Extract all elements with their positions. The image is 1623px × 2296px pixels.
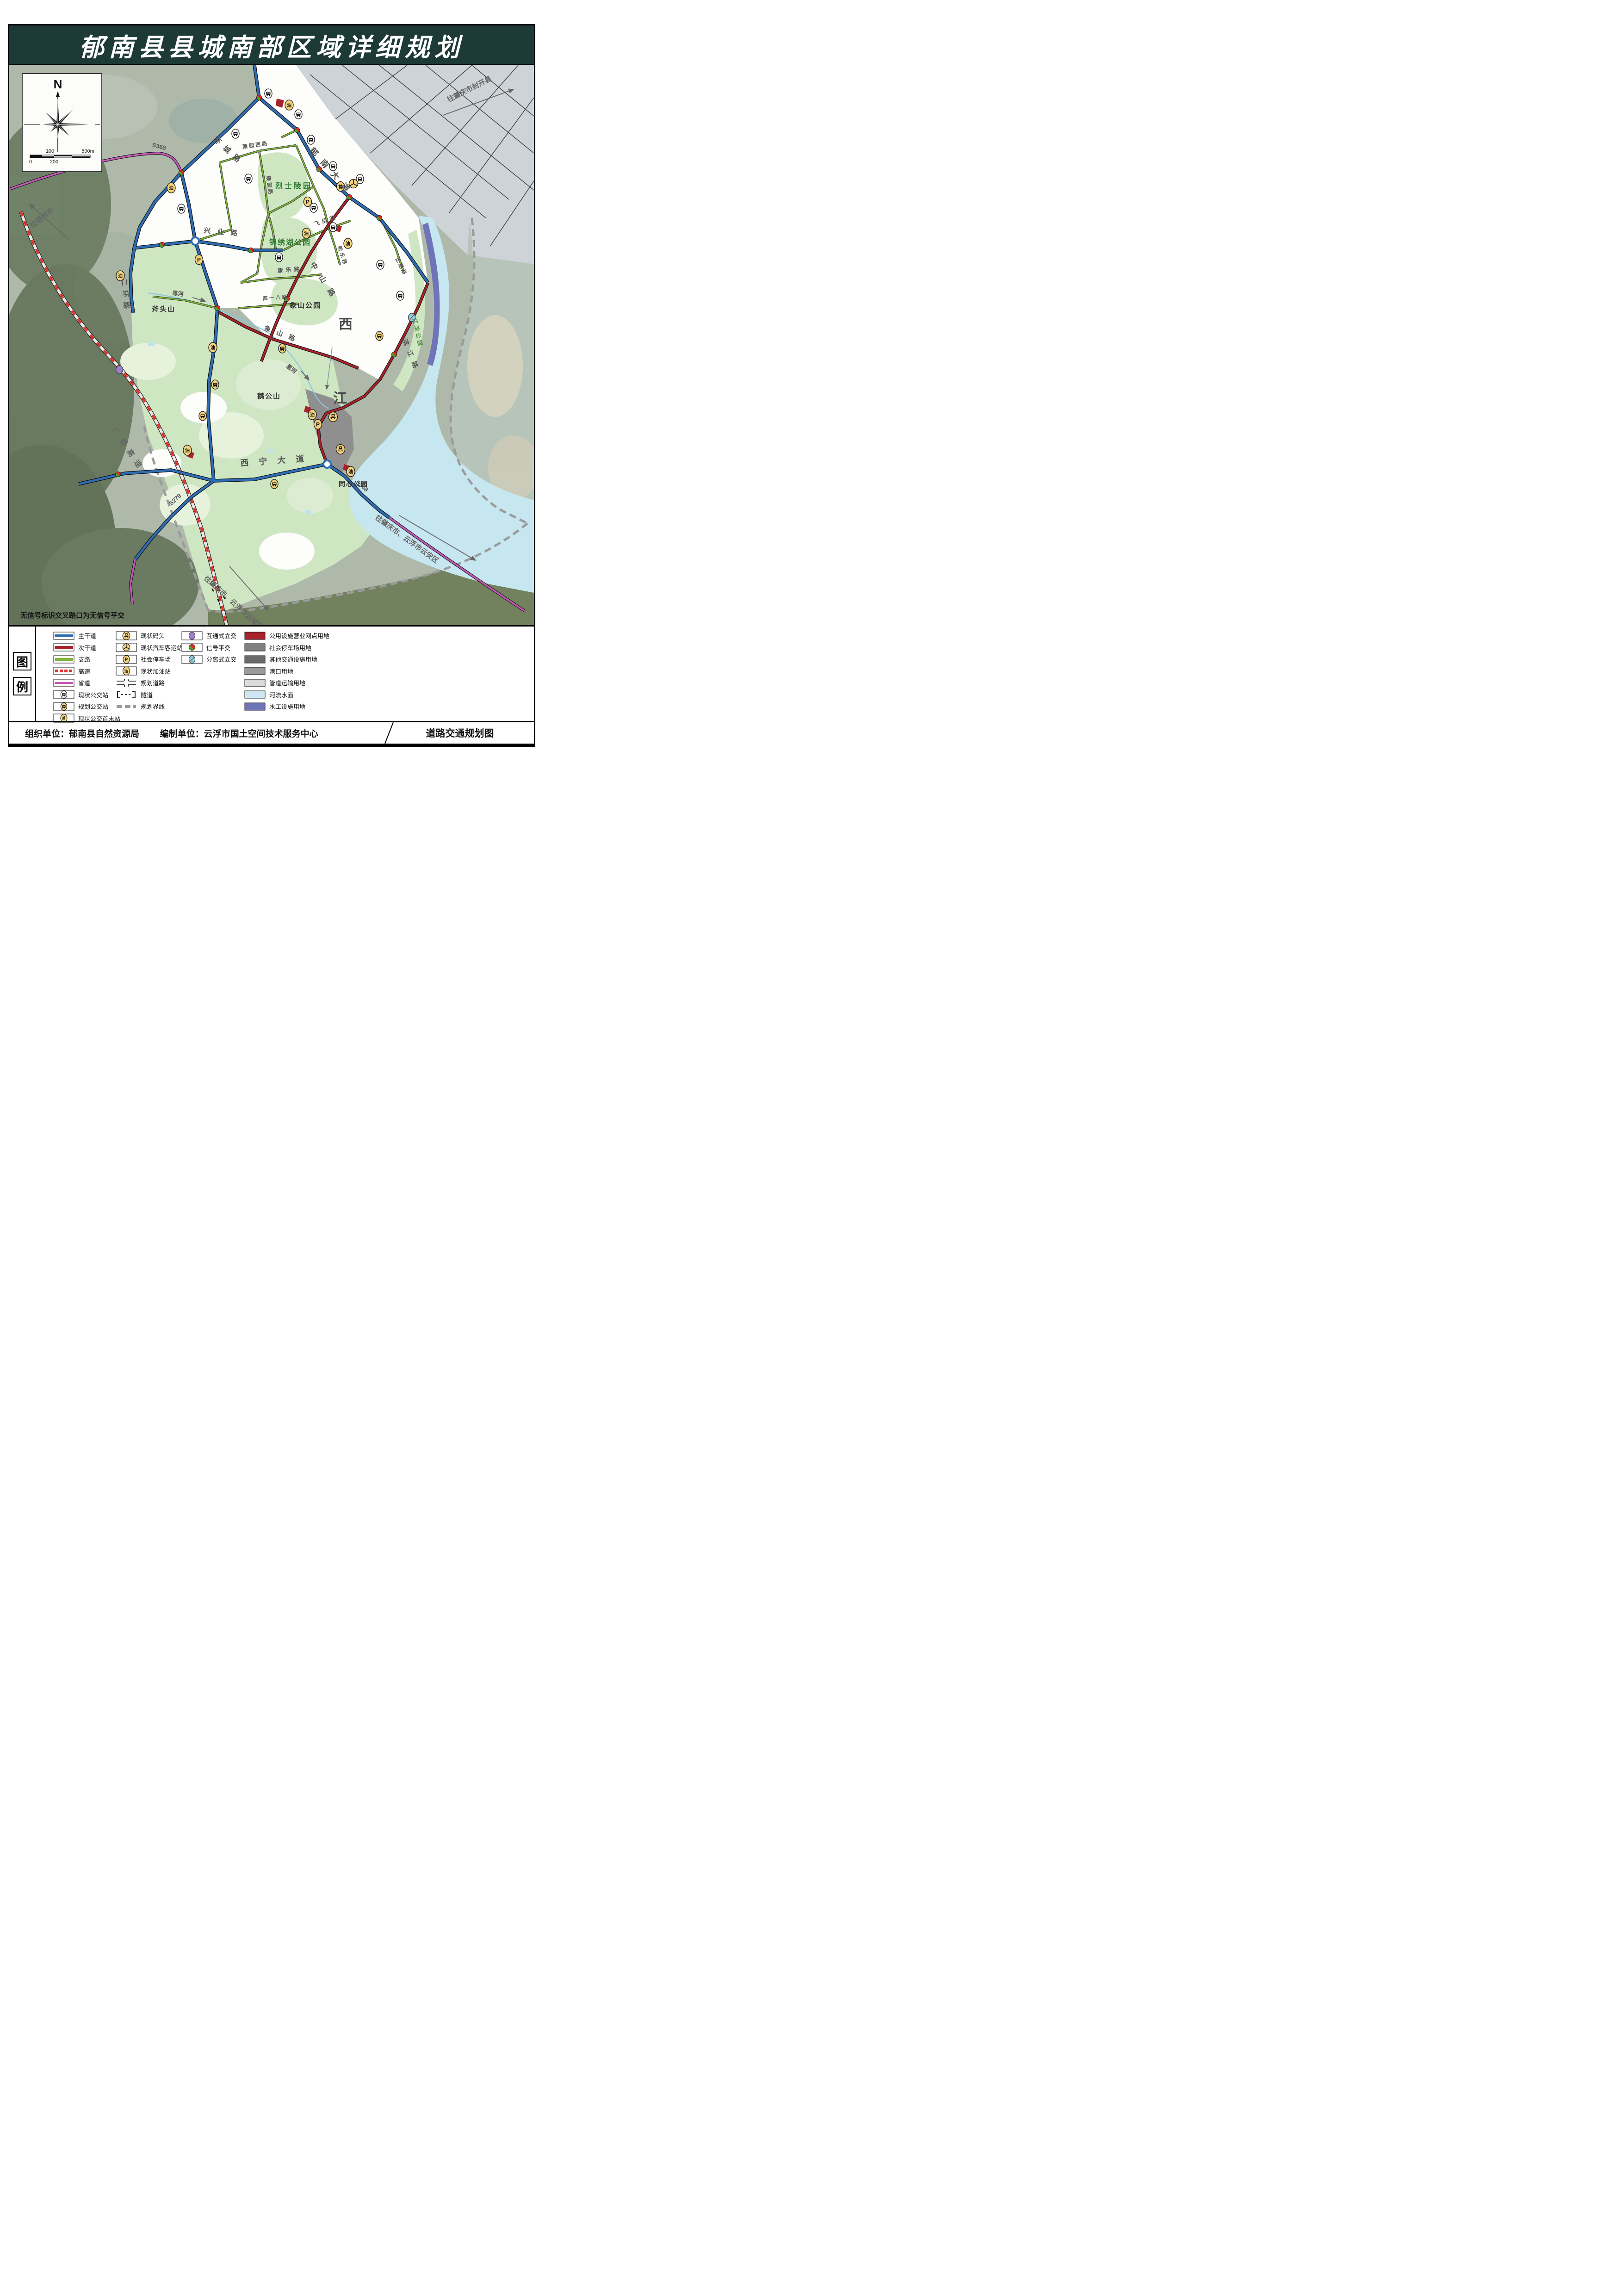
- dock-icon: [336, 445, 345, 454]
- map-title-bar: 郁南县县城南部区域详细规划: [9, 25, 534, 65]
- compiler-label: 编制单位：: [160, 729, 204, 739]
- page-title: 郁南县县城南部区域详细规划: [79, 27, 464, 63]
- planning-map: 油 P 首: [9, 65, 534, 625]
- signal-icon: [179, 170, 184, 175]
- signal-icon: [215, 305, 220, 310]
- legend-item: 信号平交: [181, 642, 236, 654]
- legend-item: 水工设施用地: [244, 701, 329, 713]
- signal-icon: [391, 352, 396, 357]
- legend-item: 省道: [53, 677, 120, 689]
- legend-col-landuse: 公用设施营业网点用地 社会停车场用地 其他交通设施用地 港口用地 管道运输用地 …: [244, 630, 329, 713]
- legend-heading-char: 例: [13, 677, 31, 695]
- gas-station-icon: [308, 410, 316, 420]
- footer-divider: [383, 722, 395, 744]
- place-label: 象山公园: [290, 301, 321, 310]
- legend: 图 例 主干道 次干道 支路 高速 省道: [9, 625, 534, 721]
- legend-item: 现状汽车客运站: [116, 642, 183, 654]
- legend-item: 支路: [53, 653, 120, 665]
- place-label: 江: [333, 391, 347, 406]
- footer: 组织单位：郁南县自然资源局 编制单位：云浮市国土空间技术服务中心 道路交通规划图: [9, 721, 534, 745]
- legend-col-roads: 主干道 次干道 支路 高速 省道 现状公交站 规划公交站: [53, 630, 120, 724]
- legend-col-facilities: 现状码头 现状汽车客运站 社会停车场 现状加油站 规划道路 隧道: [116, 630, 183, 713]
- scale-tick: 100: [46, 149, 54, 154]
- legend-item: 主干道: [53, 630, 120, 642]
- sheet-frame: 郁南县县城南部区域详细规划: [8, 24, 535, 747]
- bus-stop-icon: [396, 291, 404, 300]
- parking-icon: [195, 255, 203, 265]
- bus-stop-icon: [232, 129, 239, 138]
- scale-tick: 200: [50, 159, 58, 165]
- north-label: N: [54, 77, 62, 91]
- place-label: 鹅公山: [257, 392, 281, 400]
- gas-station-icon: [302, 228, 310, 238]
- gas-station-icon: [344, 238, 352, 248]
- place-label: 锦绣湖公园: [269, 238, 311, 247]
- planned-bus-stop-icon: [279, 344, 286, 353]
- legend-item: 高速: [53, 665, 120, 677]
- gas-station-icon: [209, 342, 217, 353]
- place-label: 西: [339, 317, 353, 332]
- legend-item: 现状码头: [116, 630, 183, 642]
- legend-heading: 图 例: [9, 627, 36, 721]
- legend-item: 公用设施营业网点用地: [244, 630, 329, 642]
- org-name: 郁南县自然资源局: [69, 729, 139, 739]
- planned-bus-stop-icon: [271, 479, 278, 489]
- bus-stop-icon: [329, 223, 337, 232]
- gas-station-icon: [167, 183, 175, 193]
- bus-stop-icon: [265, 89, 272, 98]
- roundabout: [323, 460, 331, 468]
- signal-icon: [248, 248, 253, 253]
- dock-icon: [329, 412, 338, 422]
- signal-icon: [115, 472, 120, 477]
- place-label: 烈士陵园: [275, 181, 312, 190]
- parking-icon: [314, 420, 322, 429]
- legend-item: 次干道: [53, 642, 120, 654]
- bus-stop-icon: [178, 204, 185, 213]
- scale-tick: 0: [29, 159, 32, 165]
- planned-bus-stop-icon: [199, 411, 206, 421]
- map-note: 无信号标识交叉路口为无信号平交: [20, 611, 124, 620]
- legend-col-junctions: 互通式立交 信号平交 分离式立交: [181, 630, 236, 665]
- gas-station-icon: [285, 100, 293, 110]
- bus-stop-icon: [275, 253, 283, 262]
- gas-station-icon: [183, 445, 192, 455]
- legend-item: 河流水面: [244, 689, 329, 701]
- legend-item: 港口用地: [244, 665, 329, 677]
- legend-item: 现状加油站: [116, 665, 183, 677]
- footer-credits: 组织单位：郁南县自然资源局 编制单位：云浮市国土空间技术服务中心: [9, 727, 386, 739]
- compiler-name: 云浮市国土空间技术服务中心: [204, 729, 318, 739]
- signal-icon: [256, 95, 261, 100]
- bus-stop-icon: [295, 110, 302, 119]
- planned-bus-stop-icon: [211, 380, 219, 389]
- gas-station-icon: [347, 466, 355, 477]
- parking-icon: [304, 197, 312, 207]
- compass-box: N 100 500m 0 200: [22, 74, 102, 172]
- signal-icon: [294, 127, 299, 132]
- roundabout: [192, 237, 199, 245]
- org-label: 组织单位：: [25, 729, 69, 739]
- legend-item: 规划公交站: [53, 701, 120, 713]
- bus-stop-icon: [307, 135, 315, 144]
- legend-item: 其他交通设施用地: [244, 653, 329, 665]
- map-area: 油 P 首: [9, 65, 534, 625]
- legend-item: 隧道: [116, 689, 183, 701]
- legend-item: 现状公交站: [53, 689, 120, 701]
- signal-icon: [377, 215, 382, 220]
- place-label: 同心公园: [339, 480, 368, 488]
- legend-item: 社会停车场: [116, 653, 183, 665]
- place-label: 斧头山: [152, 305, 175, 313]
- signal-icon: [316, 167, 322, 172]
- map-sheet-name: 道路交通规划图: [386, 726, 534, 740]
- signal-icon: [159, 242, 164, 247]
- bus-stop-icon: [377, 260, 384, 269]
- legend-item: 互通式立交: [181, 630, 236, 642]
- legend-item: 社会停车场用地: [244, 642, 329, 654]
- legend-item: 分离式立交: [181, 653, 236, 665]
- legend-item: 管道运输用地: [244, 677, 329, 689]
- bus-stop-icon: [245, 174, 252, 183]
- legend-item: 规划界线: [116, 701, 183, 713]
- planned-bus-stop-icon: [376, 331, 383, 341]
- interchange-icon: [116, 366, 123, 374]
- legend-item: 规划道路: [116, 677, 183, 689]
- legend-heading-char: 图: [13, 652, 31, 670]
- scale-tick: 500m: [81, 149, 94, 154]
